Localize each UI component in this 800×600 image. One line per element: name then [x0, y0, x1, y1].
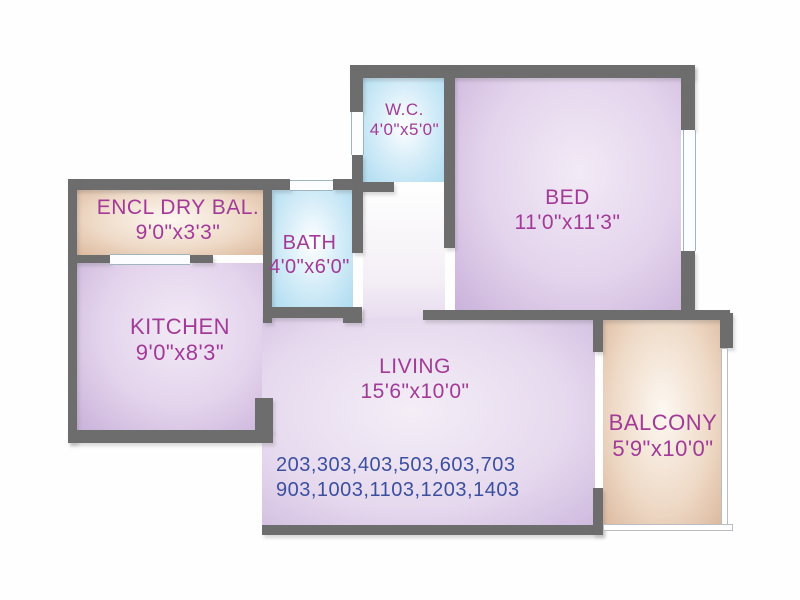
wc-room-size: 4'0"x5'0"	[347, 120, 462, 140]
wall-bed-bottom	[423, 310, 730, 320]
wall-kitchen-right-lower	[255, 398, 273, 432]
wall-bath-top-right	[333, 179, 352, 190]
balcony-name: BALCONY	[598, 410, 728, 436]
bed-room-size: 11'0"x11'3"	[455, 211, 680, 236]
wall-kitchen-bottom	[68, 430, 273, 443]
wall-balcony-corner-stub	[720, 313, 733, 348]
wall-dry-balcony-bottom-right	[190, 255, 213, 263]
wall-wc-bed-divider	[444, 65, 455, 248]
balcony-size: 5'9"x10'0"	[598, 436, 728, 462]
wall-living-balcony-top	[593, 318, 603, 352]
wall-dry-balcony-top	[68, 179, 290, 190]
wall-bath-bottom-stub	[343, 307, 362, 323]
dry-balcony-window	[110, 254, 190, 265]
floor-plan: W.C. 4'0"x5'0" BED 11'0"x11'3" ENCL DRY …	[0, 0, 800, 600]
hall-passage-floor	[363, 192, 445, 318]
wall-bed-right-upper	[681, 65, 695, 130]
wall-wc-bottom	[352, 182, 394, 192]
kitchen-name: KITCHEN	[80, 314, 280, 340]
unit-numbers: 203,303,403,503,603,703 903,1003,1103,12…	[276, 453, 546, 503]
living-room-label: LIVING 15'6"x10'0"	[310, 355, 520, 405]
balcony-railing-bottom	[603, 524, 733, 531]
wall-top-exterior	[350, 65, 695, 78]
balcony-label: BALCONY 5'9"x10'0"	[598, 410, 728, 462]
wall-bed-right-lower	[681, 251, 695, 313]
bed-room-label: BED 11'0"x11'3"	[455, 186, 680, 236]
wall-dry-balcony-bottom-left	[68, 255, 110, 263]
bed-room-name: BED	[455, 186, 680, 211]
bath-room-label: BATH 4'0"x6'0"	[252, 232, 367, 279]
living-room-name: LIVING	[310, 355, 520, 380]
bath-room-size: 4'0"x6'0"	[252, 256, 367, 280]
wc-room-name: W.C.	[347, 100, 462, 120]
wall-living-balcony-bottom	[593, 488, 603, 535]
bath-room-name: BATH	[252, 232, 367, 256]
bed-window	[683, 130, 696, 251]
unit-numbers-line1: 203,303,403,503,603,703	[276, 453, 546, 478]
living-room-size: 15'6"x10'0"	[310, 380, 520, 405]
wall-living-bottom	[262, 525, 603, 535]
kitchen-label: KITCHEN 9'0"x8'3"	[80, 314, 280, 366]
dry-balcony-name: ENCL DRY BAL.	[62, 196, 294, 221]
wc-room-label: W.C. 4'0"x5'0"	[347, 100, 462, 140]
unit-numbers-line2: 903,1003,1103,1203,1403	[276, 478, 546, 503]
kitchen-size: 9'0"x8'3"	[80, 340, 280, 366]
bath-window	[290, 180, 333, 191]
